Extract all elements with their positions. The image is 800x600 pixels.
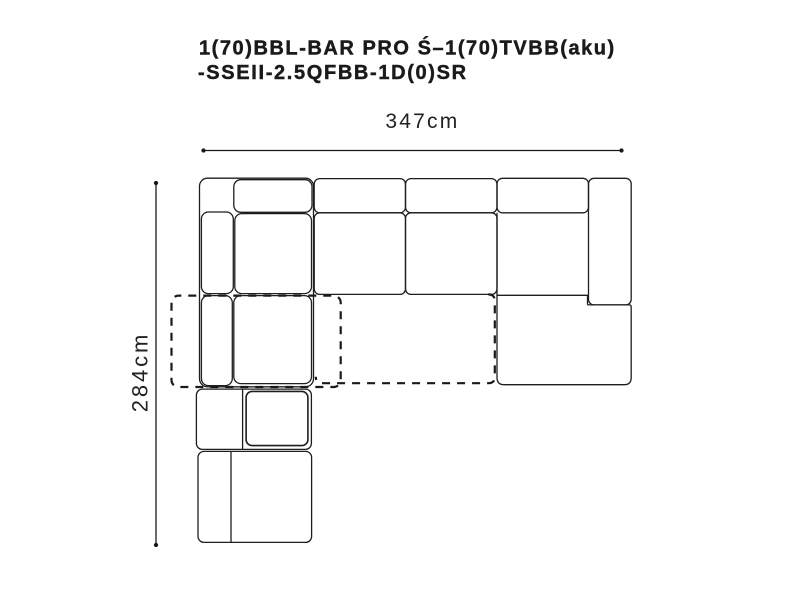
svg-text:284cm: 284cm xyxy=(128,332,153,413)
svg-text:347cm: 347cm xyxy=(385,110,459,133)
svg-text:-SSEII-2.5QFBB-1D(0)SR: -SSEII-2.5QFBB-1D(0)SR xyxy=(198,62,468,84)
svg-text:1(70)BBL-BAR PRO Ś–1(70)TVBB(a: 1(70)BBL-BAR PRO Ś–1(70)TVBB(aku) xyxy=(199,36,616,60)
